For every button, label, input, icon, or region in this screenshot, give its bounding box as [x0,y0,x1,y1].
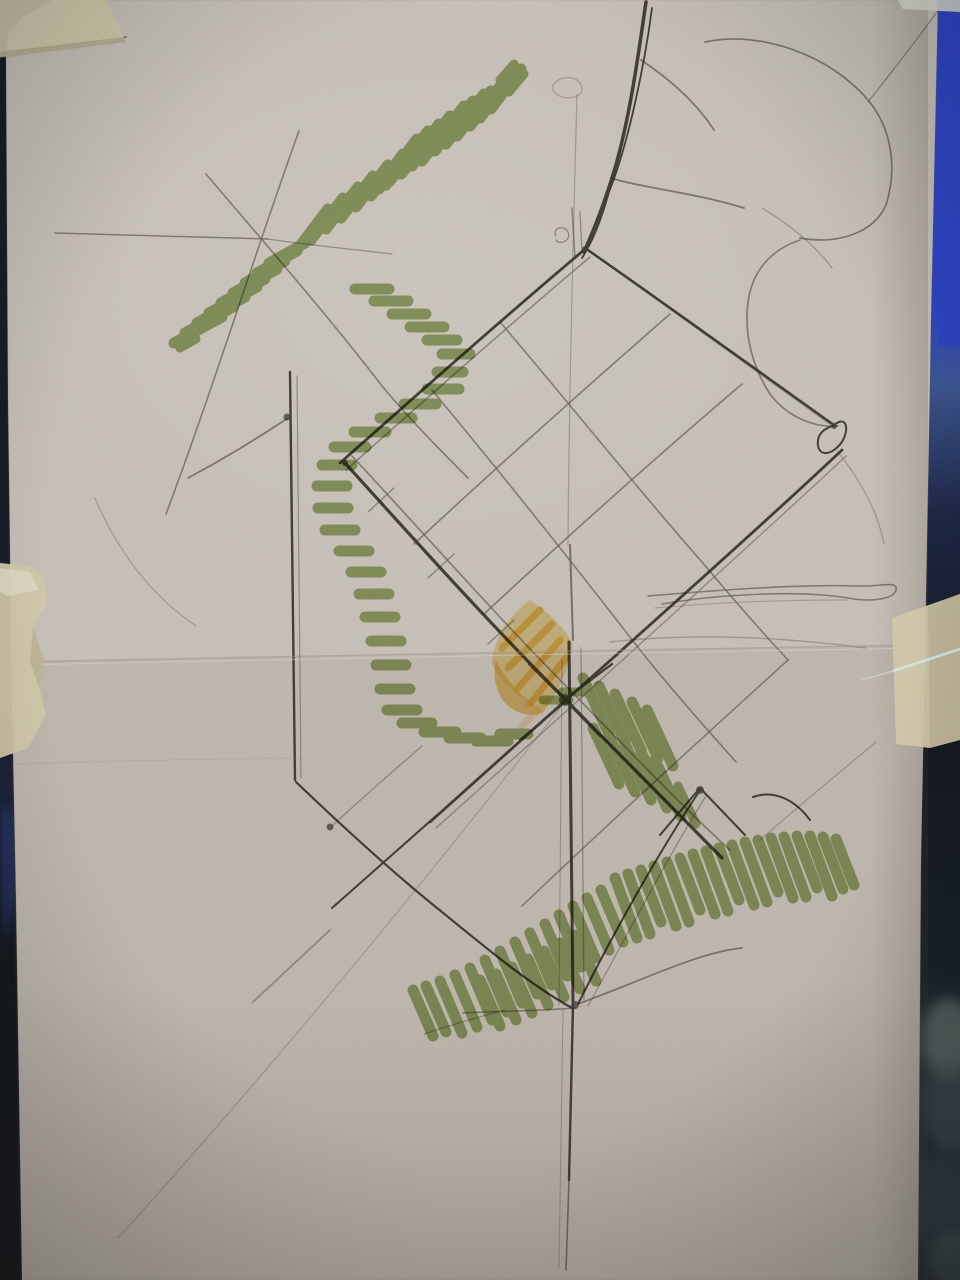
vignette-overlay [0,0,960,1280]
sketch-canvas [0,0,960,1280]
photo-of-sketch [0,0,960,1280]
